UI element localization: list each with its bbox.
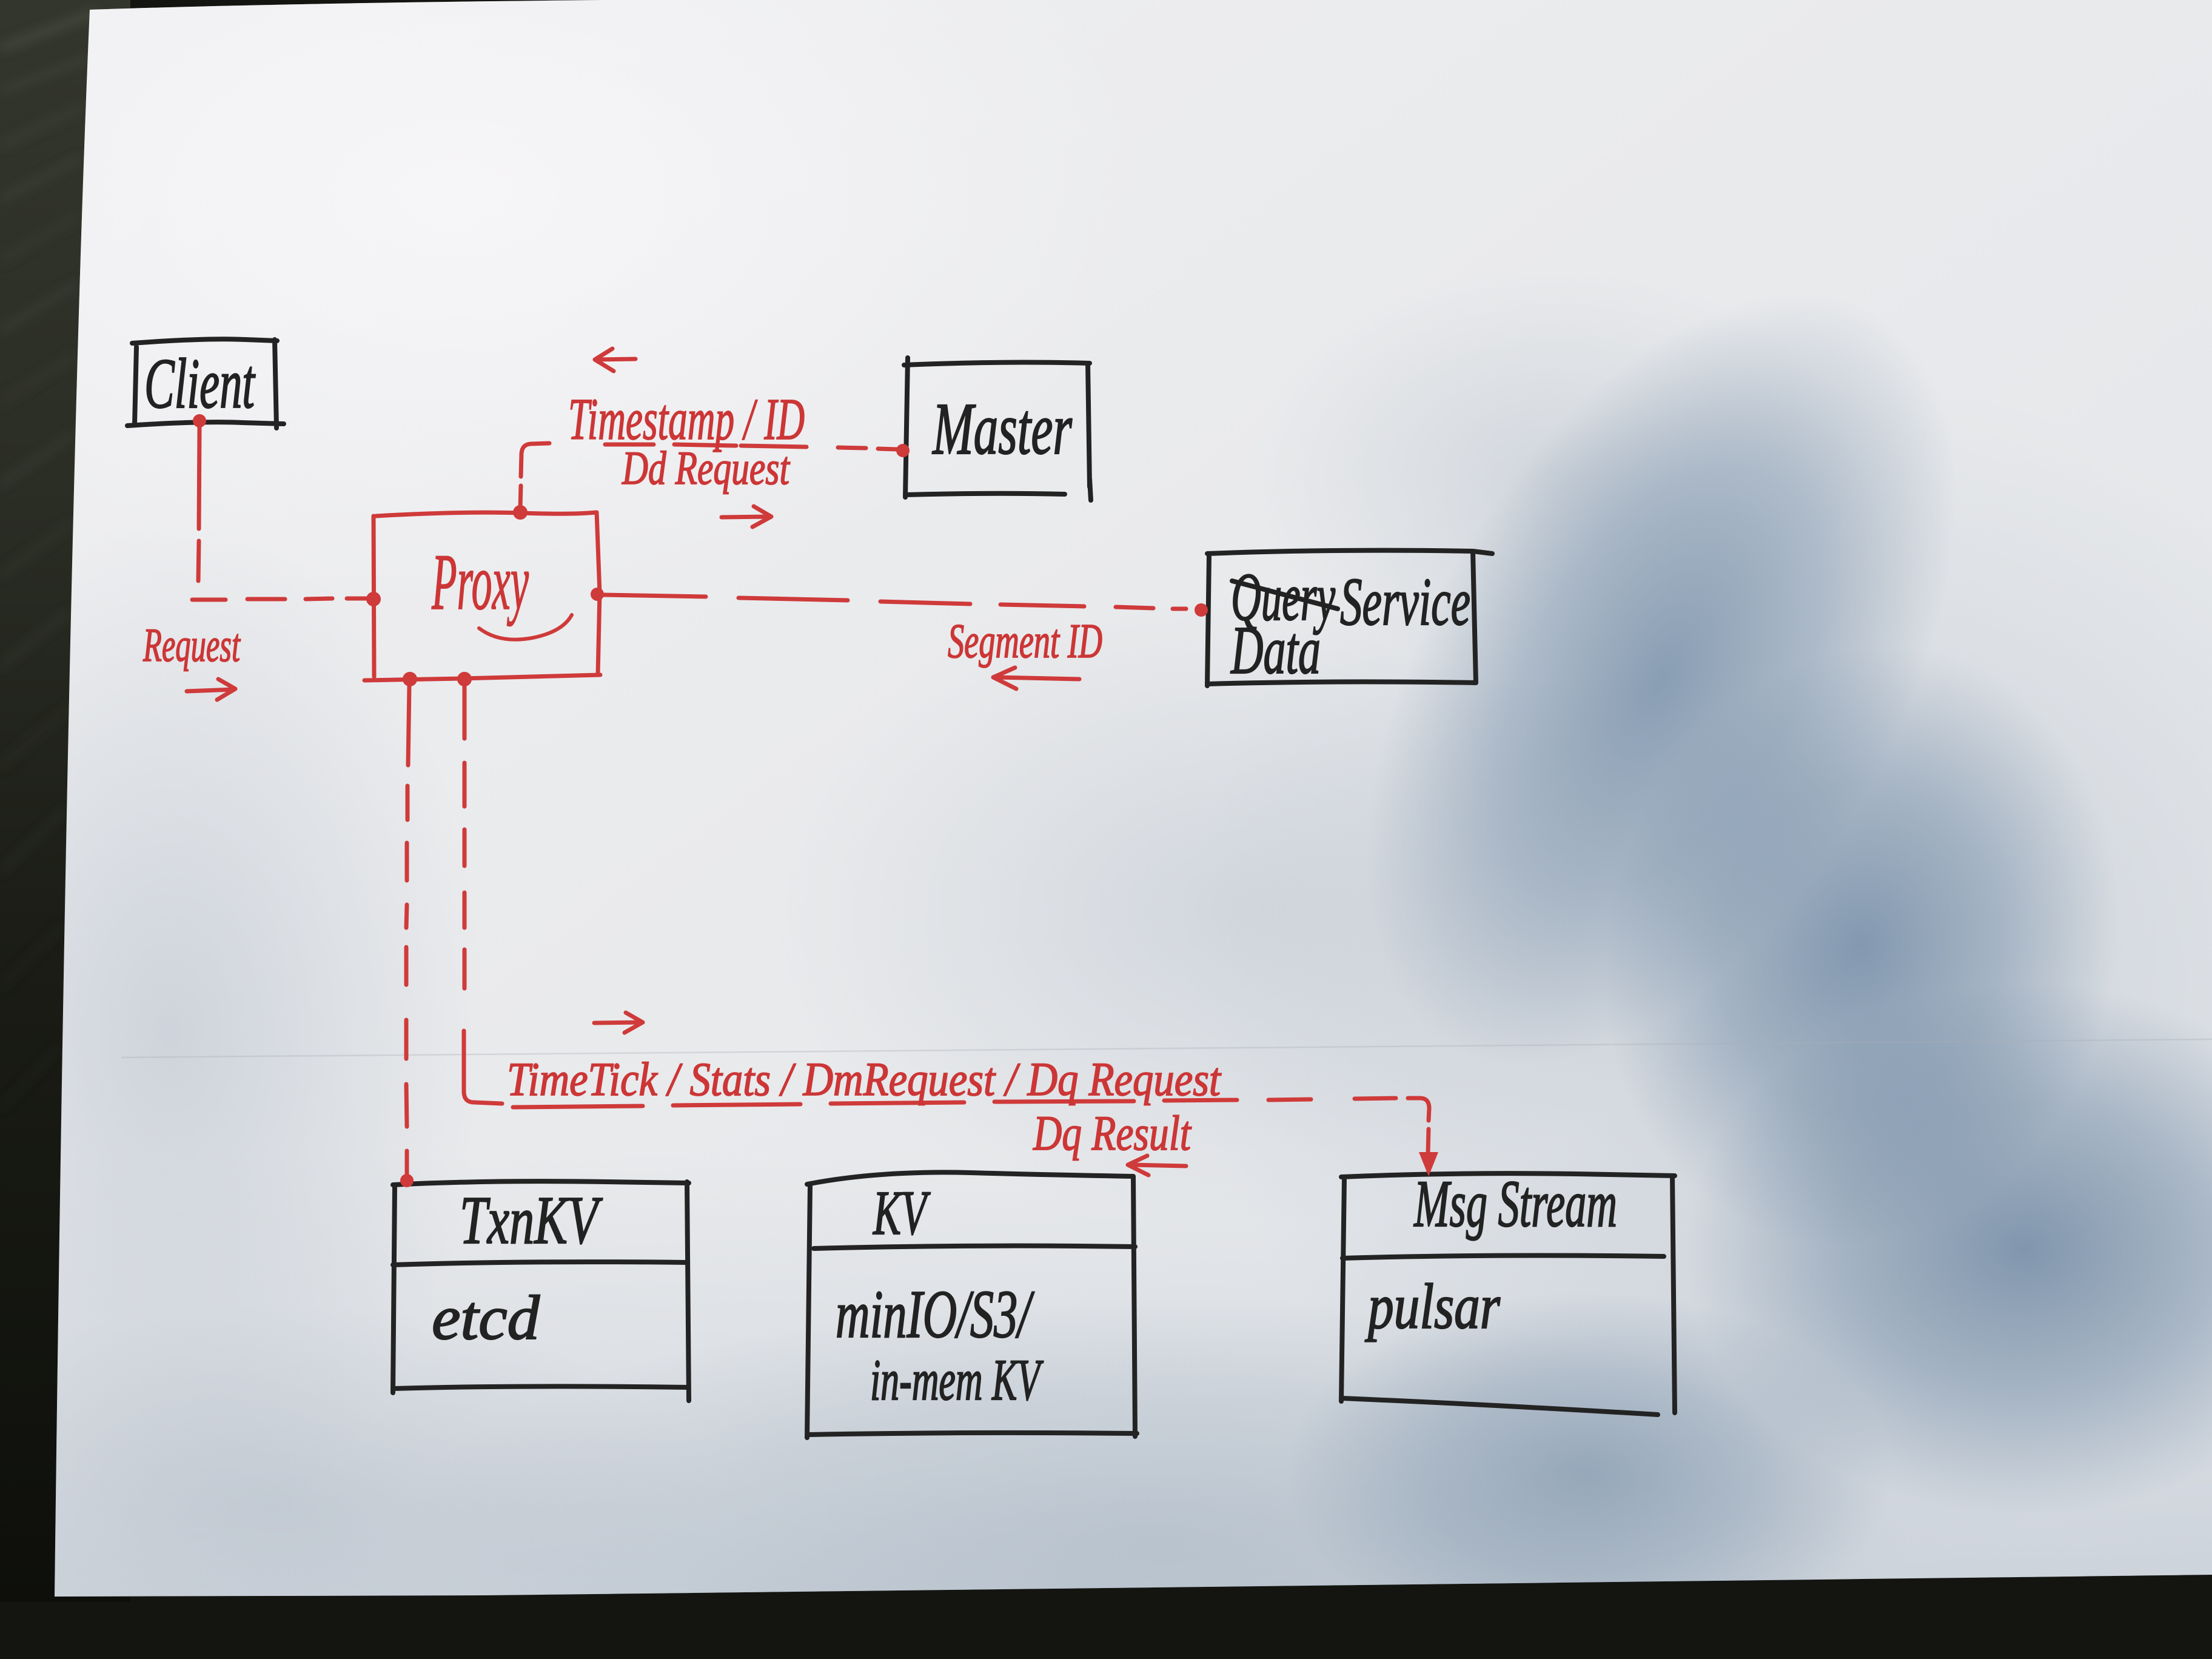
svg-text:Dd Request: Dd Request: [622, 441, 791, 494]
svg-text:Dq Result: Dq Result: [1033, 1105, 1192, 1161]
svg-text:Msg Stream: Msg Stream: [1413, 1167, 1617, 1241]
svg-text:TimeTick / Stats / DmRequest /: TimeTick / Stats / DmRequest / Dq Reques…: [507, 1053, 1222, 1105]
svg-text:etcd: etcd: [432, 1283, 540, 1353]
svg-text:Request: Request: [142, 618, 241, 671]
svg-text:Client: Client: [144, 344, 256, 423]
svg-text:Master: Master: [932, 388, 1073, 470]
svg-text:Service: Service: [1340, 565, 1470, 640]
svg-text:Segment ID: Segment ID: [948, 615, 1102, 668]
svg-text:pulsar: pulsar: [1364, 1271, 1500, 1342]
svg-text:Proxy: Proxy: [431, 537, 529, 626]
svg-text:KV: KV: [873, 1178, 931, 1248]
svg-text:in-mem KV: in-mem KV: [870, 1347, 1044, 1412]
svg-text:minIO/S3/: minIO/S3/: [836, 1277, 1034, 1352]
svg-text:TxnKV: TxnKV: [460, 1183, 603, 1258]
svg-text:Data: Data: [1230, 613, 1321, 688]
